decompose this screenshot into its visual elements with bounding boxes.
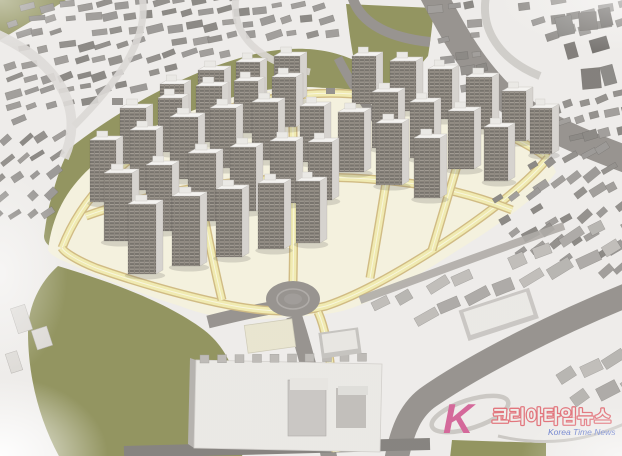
building-box	[115, 1, 129, 9]
tower-penthouse	[223, 180, 234, 186]
parapet-segment	[200, 355, 209, 363]
tower-penthouse	[421, 129, 432, 135]
building-box	[252, 7, 266, 15]
tower-penthouse	[127, 99, 138, 105]
tower-penthouse	[97, 131, 108, 137]
tower-penthouse	[302, 172, 312, 178]
tower-penthouse	[166, 75, 176, 81]
tower-penthouse	[164, 89, 174, 95]
tower-window-face	[448, 111, 474, 169]
school-block-roof	[290, 378, 328, 390]
building-box	[86, 12, 103, 21]
tower-side-face	[402, 119, 409, 185]
tower-window-face	[484, 127, 508, 181]
tower-window-face	[216, 189, 242, 257]
building-box	[325, 29, 339, 38]
roundabout-island	[284, 294, 302, 305]
tower-penthouse	[473, 68, 484, 74]
building-box	[66, 16, 76, 22]
tower-side-face	[552, 104, 559, 154]
parapet-segment	[253, 354, 262, 362]
tower-penthouse	[205, 61, 216, 67]
parapet-segment	[218, 355, 227, 363]
tower-penthouse	[137, 121, 148, 127]
building-box	[467, 19, 482, 28]
tower-penthouse	[153, 156, 164, 162]
tower-window-face	[338, 112, 364, 172]
tower-penthouse	[536, 99, 545, 105]
building-box	[471, 32, 480, 38]
building-box	[578, 11, 597, 30]
tower-penthouse	[314, 133, 324, 139]
tower-penthouse	[379, 83, 390, 89]
site-slab	[318, 327, 361, 358]
tower-penthouse	[259, 93, 270, 99]
roundabout	[266, 281, 320, 317]
tower-window-face	[376, 123, 402, 185]
tower-penthouse	[265, 174, 276, 180]
tower-side-face	[474, 107, 481, 169]
tower-side-face	[242, 185, 249, 257]
watermark-sub-text: Korea Time News	[548, 427, 616, 437]
tower-penthouse	[278, 68, 288, 74]
apartment-tower	[373, 114, 410, 191]
parapet-segment	[270, 354, 279, 362]
tower-window-face	[258, 183, 284, 249]
tower-window-face	[296, 181, 320, 243]
tower-window-face	[128, 204, 156, 274]
apartment-tower	[335, 103, 372, 178]
school-annex-roof	[338, 386, 368, 395]
tower-penthouse	[345, 103, 356, 109]
tower-side-face	[284, 179, 291, 249]
tower-side-face	[508, 123, 515, 181]
tower-penthouse	[508, 82, 518, 88]
tower-penthouse	[242, 53, 252, 59]
building-box	[326, 88, 335, 94]
tower-side-face	[364, 108, 371, 172]
building-box	[243, 21, 254, 27]
apartment-tower	[445, 102, 482, 175]
tower-window-face	[530, 108, 552, 154]
apartment-tower	[294, 172, 329, 249]
building-box	[427, 5, 443, 14]
k-logo-icon: K	[443, 395, 476, 442]
building-box	[472, 51, 481, 57]
building-box	[60, 0, 75, 7]
tower-penthouse	[397, 52, 408, 58]
tower-penthouse	[455, 102, 466, 108]
parapet-segment	[305, 354, 314, 362]
tower-penthouse	[217, 99, 228, 105]
tower-window-face	[414, 138, 440, 198]
apartment-tower	[482, 118, 517, 187]
parapet-segment	[358, 353, 367, 361]
apartment-complex-rendering: K 코리아타임뉴스 Korea Time News	[0, 0, 622, 456]
tower-window-face	[172, 196, 200, 266]
tower-penthouse	[195, 144, 207, 150]
parapet-segment	[235, 355, 244, 363]
tower-penthouse	[416, 93, 426, 99]
tower-penthouse	[135, 195, 147, 201]
tower-penthouse	[434, 60, 444, 66]
tower-side-face	[440, 134, 447, 198]
tower-side-face	[332, 138, 339, 200]
apartment-tower	[169, 187, 209, 272]
tower-penthouse	[237, 138, 248, 144]
tower-penthouse	[281, 47, 292, 53]
tower-side-face	[200, 192, 207, 266]
tower-penthouse	[203, 77, 214, 83]
apartment-tower	[255, 174, 292, 255]
tower-penthouse	[111, 164, 123, 170]
tower-side-face	[156, 200, 163, 274]
tower-penthouse	[383, 114, 394, 120]
building-box	[518, 2, 530, 11]
tower-penthouse	[490, 118, 500, 124]
tower-penthouse	[179, 187, 191, 193]
apartment-tower	[411, 129, 448, 204]
tower-penthouse	[240, 72, 250, 78]
apartment-tower	[528, 99, 560, 160]
apartment-tower	[125, 195, 165, 280]
tower-side-face	[320, 177, 327, 243]
aerial-rendering-canvas: K 코리아타임뉴스 Korea Time News	[0, 0, 622, 456]
building-box	[300, 15, 312, 23]
building-box	[456, 52, 469, 61]
parapet-segment	[288, 354, 297, 362]
tower-penthouse	[177, 108, 189, 114]
watermark-brand-text: 코리아타임뉴스	[492, 407, 611, 427]
building-box	[581, 67, 602, 89]
tower-penthouse	[358, 47, 368, 53]
apartment-tower	[213, 180, 250, 263]
tower-penthouse	[277, 132, 288, 138]
tower-penthouse	[306, 97, 316, 103]
building-box	[112, 98, 123, 105]
